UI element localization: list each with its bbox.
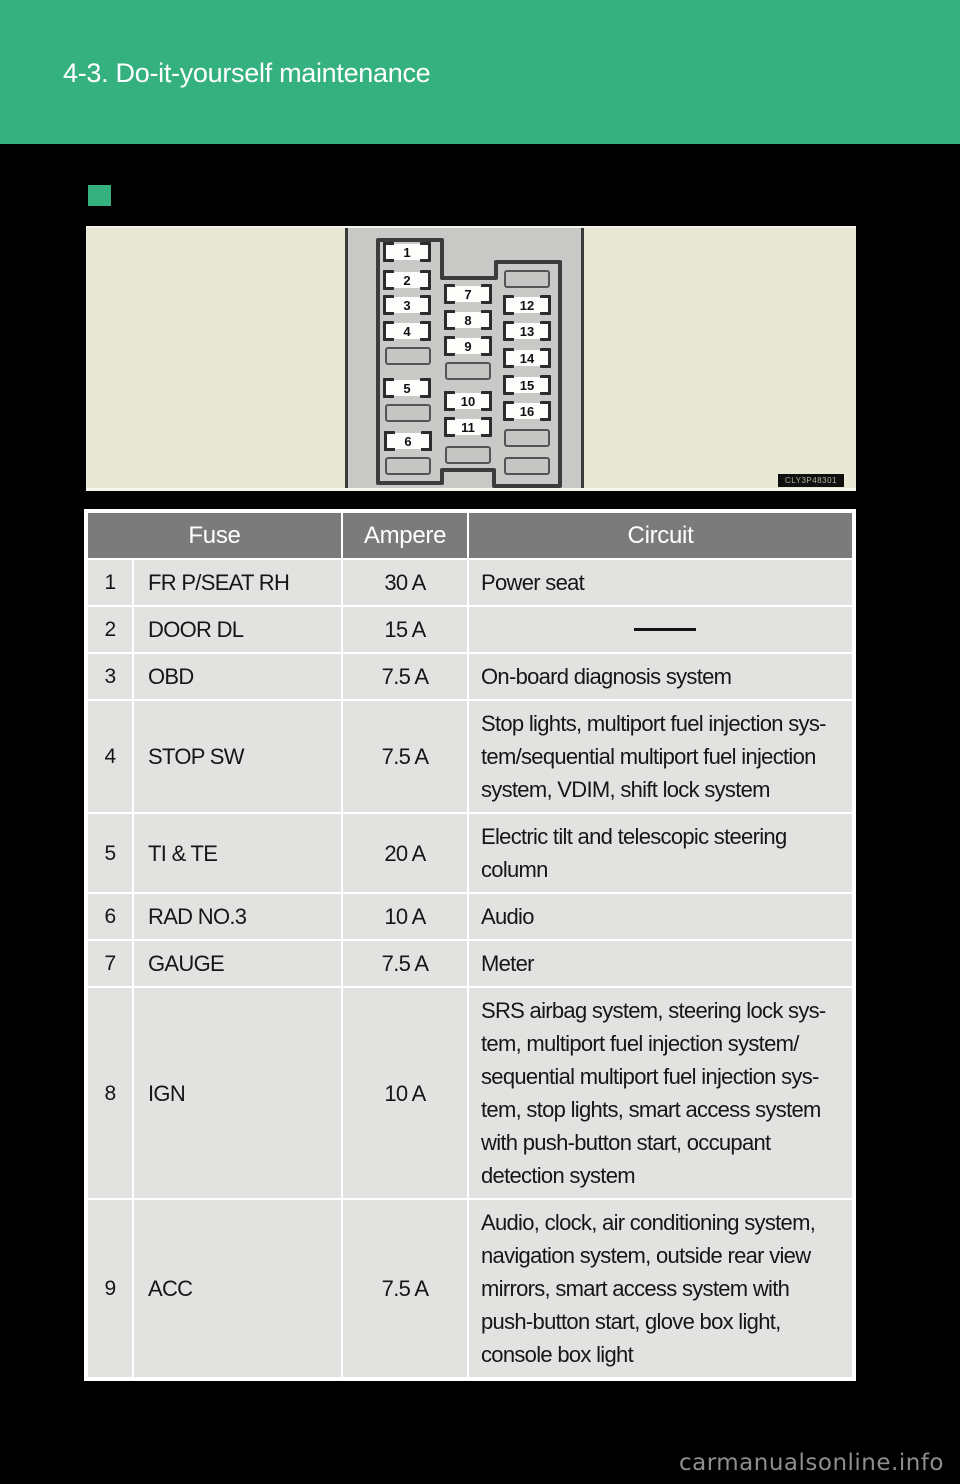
col-header-fuse: Fuse: [88, 513, 341, 558]
cell-fuse: DOOR DL: [134, 607, 341, 652]
fuse-slot-blank: [385, 347, 431, 365]
fuse-slot-6: 6: [385, 433, 431, 449]
cell-amp: 7.5 A: [343, 701, 467, 812]
fuse-table-grid: Fuse Ampere Circuit 1FR P/SEAT RH30 APow…: [86, 511, 854, 1379]
fuse-slot-blank: [445, 446, 491, 464]
table-header-row: Fuse Ampere Circuit: [88, 513, 852, 558]
section-title: 4-3. Do-it-yourself maintenance: [0, 0, 960, 88]
cell-fuse: OBD: [134, 654, 341, 699]
fuse-slot-blank: [504, 429, 550, 447]
cell-amp: 7.5 A: [343, 941, 467, 986]
manual-page: 4-3. Do-it-yourself maintenance 12345678…: [0, 0, 960, 1484]
fuse-slot-blank: [385, 404, 431, 422]
fuse-row-3: 3OBD7.5 AOn-board diagnosis system: [88, 654, 852, 699]
fuse-number: 14: [520, 352, 534, 365]
fuse-slot-3: 3: [384, 297, 430, 313]
cell-fuse: TI & TE: [134, 814, 341, 892]
fuse-number: 16: [520, 405, 534, 418]
col-header-ampere: Ampere: [343, 513, 467, 558]
watermark-site-text: carmanualsonline.info: [679, 1450, 944, 1476]
cell-num: 6: [88, 894, 132, 939]
fuse-slot-13: 13: [504, 323, 550, 339]
cell-num: 5: [88, 814, 132, 892]
fuse-number: 2: [403, 274, 410, 287]
fuse-row-1: 1FR P/SEAT RH30 APower seat: [88, 560, 852, 605]
cell-amp: 10 A: [343, 988, 467, 1198]
fuse-row-4: 4STOP SW7.5 AStop lights, multiport fuel…: [88, 701, 852, 812]
cell-circ: On-board diagnosis system: [469, 654, 852, 699]
fuse-row-7: 7GAUGE7.5 AMeter: [88, 941, 852, 986]
fuse-slot-2: 2: [384, 272, 430, 288]
fuse-number: 4: [403, 325, 410, 338]
fuse-slot-12: 12: [504, 297, 550, 313]
cell-circ: Electric tilt and telescopic steering co…: [469, 814, 852, 892]
cell-num: 8: [88, 988, 132, 1198]
fuse-slot-4: 4: [384, 323, 430, 339]
fuse-number: 13: [520, 325, 534, 338]
fuse-row-5: 5TI & TE20 AElectric tilt and telescopic…: [88, 814, 852, 892]
fuse-number: 6: [404, 435, 411, 448]
cell-amp: 20 A: [343, 814, 467, 892]
fuse-number: 5: [403, 382, 410, 395]
fuse-number: 1: [403, 246, 410, 259]
fuse-slot-8: 8: [445, 312, 491, 328]
section-header-band: 4-3. Do-it-yourself maintenance: [0, 0, 960, 144]
cell-fuse: STOP SW: [134, 701, 341, 812]
fuse-row-8: 8IGN10 ASRS airbag system, steering lock…: [88, 988, 852, 1198]
fuse-number: 12: [520, 299, 534, 312]
fuse-slot-1: 1: [384, 244, 430, 260]
cell-circ: Audio: [469, 894, 852, 939]
dash-line: [634, 628, 696, 631]
cell-num: 7: [88, 941, 132, 986]
fuse-slot-10: 10: [445, 393, 491, 409]
fuse-slot-11: 11: [445, 419, 491, 435]
fuse-slot-9: 9: [445, 338, 491, 354]
fuse-number: 11: [461, 421, 475, 434]
cell-circ: Stop lights, multiport fuel injection sy…: [469, 701, 852, 812]
illustration-code: CLY3P48301: [778, 474, 844, 487]
fuse-slot-15: 15: [504, 377, 550, 393]
fuse-number: 7: [464, 288, 471, 301]
cell-circ: Audio, clock, air conditioning system, n…: [469, 1200, 852, 1377]
fuse-slot-blank: [504, 457, 550, 475]
fuse-slot-16: 16: [504, 403, 550, 419]
cell-fuse: GAUGE: [134, 941, 341, 986]
fuse-number: 15: [520, 379, 534, 392]
cell-fuse: RAD NO.3: [134, 894, 341, 939]
cell-amp: 30 A: [343, 560, 467, 605]
cell-num: 9: [88, 1200, 132, 1377]
cell-circ: SRS airbag system, steering lock sys- te…: [469, 988, 852, 1198]
fuse-number: 10: [461, 395, 475, 408]
cell-num: 3: [88, 654, 132, 699]
fuse-slots: 12345678910111213141516: [86, 228, 856, 488]
fuse-slot-blank: [504, 270, 550, 288]
fuse-slot-14: 14: [504, 350, 550, 366]
cell-circ: Power seat: [469, 560, 852, 605]
fuse-slot-7: 7: [445, 286, 491, 302]
fuse-slot-5: 5: [384, 380, 430, 396]
section-bullet-square: [88, 185, 111, 206]
cell-amp: 7.5 A: [343, 654, 467, 699]
cell-num: 2: [88, 607, 132, 652]
cell-circ: Meter: [469, 941, 852, 986]
fuse-slot-blank: [385, 457, 431, 475]
fuse-slot-blank: [445, 362, 491, 380]
cell-num: 4: [88, 701, 132, 812]
col-header-circuit: Circuit: [469, 513, 852, 558]
cell-amp: 15 A: [343, 607, 467, 652]
fuse-row-6: 6RAD NO.310 AAudio: [88, 894, 852, 939]
fuse-number: 3: [403, 299, 410, 312]
cell-fuse: FR P/SEAT RH: [134, 560, 341, 605]
fuse-row-9: 9ACC7.5 AAudio, clock, air conditioning …: [88, 1200, 852, 1377]
cell-fuse: IGN: [134, 988, 341, 1198]
cell-fuse: ACC: [134, 1200, 341, 1377]
fuse-table-body: 1FR P/SEAT RH30 APower seat2DOOR DL15 A3…: [88, 560, 852, 1377]
fuse-number: 9: [464, 340, 471, 353]
cell-circ: [469, 607, 852, 652]
fuse-number: 8: [464, 314, 471, 327]
cell-amp: 7.5 A: [343, 1200, 467, 1377]
fuse-box-diagram: 12345678910111213141516 CLY3P48301: [86, 226, 856, 491]
fuse-row-2: 2DOOR DL15 A: [88, 607, 852, 652]
cell-num: 1: [88, 560, 132, 605]
fuse-table: Fuse Ampere Circuit 1FR P/SEAT RH30 APow…: [84, 509, 856, 1381]
cell-amp: 10 A: [343, 894, 467, 939]
